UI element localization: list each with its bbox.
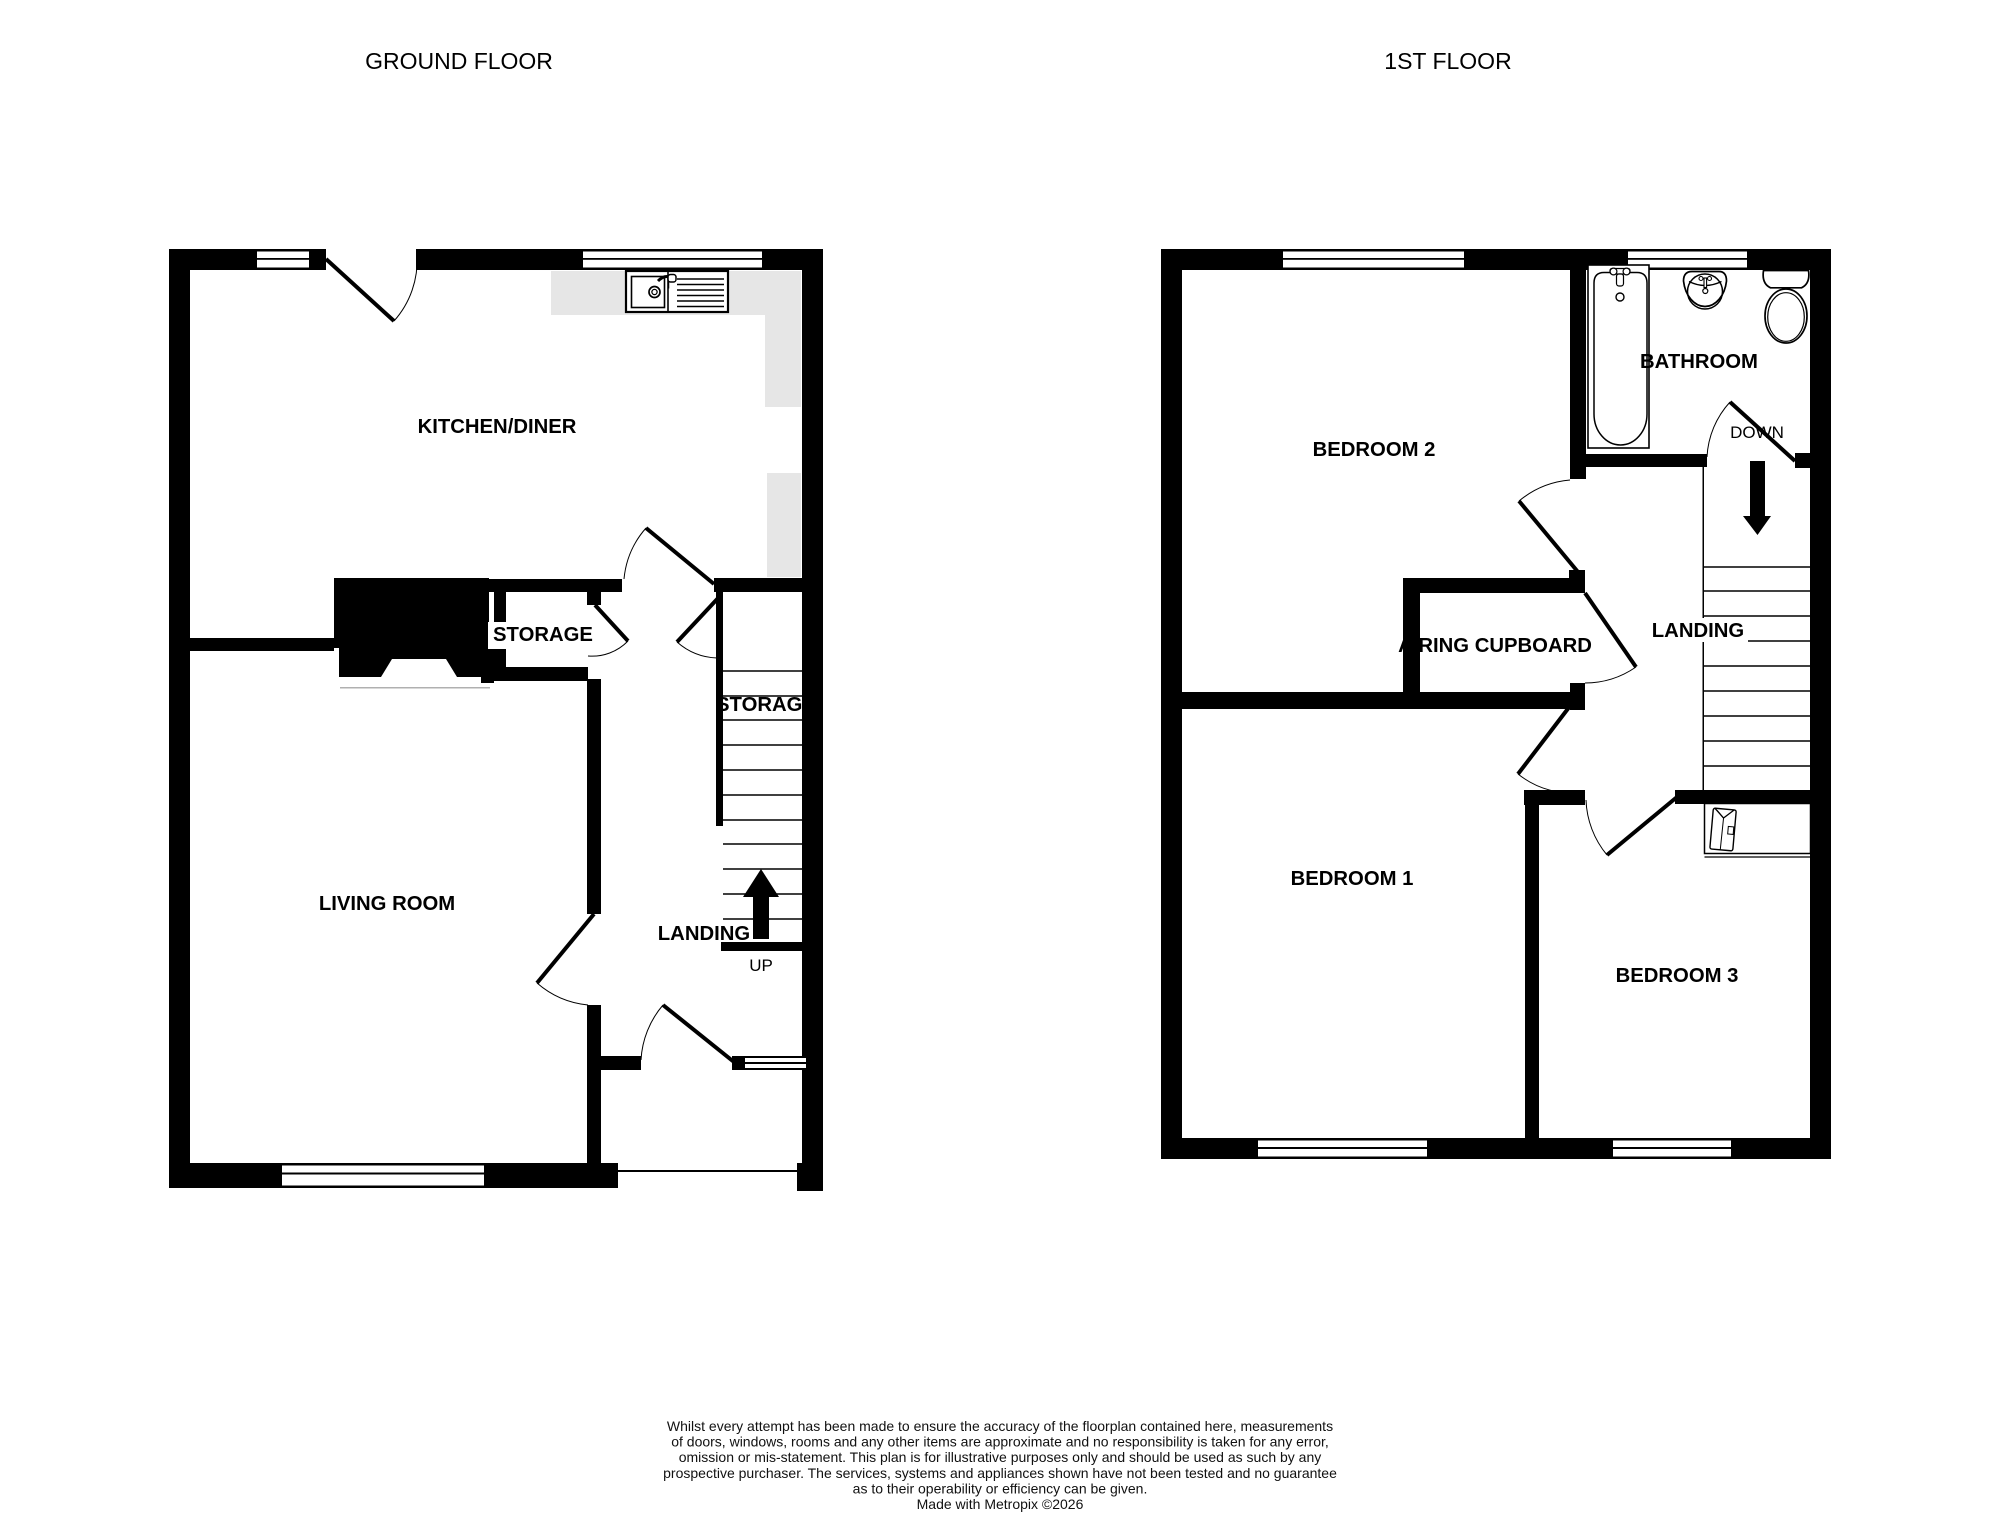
svg-text:BEDROOM 3: BEDROOM 3	[1616, 965, 1739, 987]
svg-text:BATHROOM: BATHROOM	[1640, 351, 1758, 373]
svg-text:STORAGE: STORAGE	[716, 694, 816, 716]
svg-text:DOWN: DOWN	[1730, 423, 1784, 442]
svg-text:KITCHEN/DINER: KITCHEN/DINER	[418, 416, 577, 438]
svg-text:as to their operability or eff: as to their operability or efficiency ca…	[853, 1480, 1148, 1496]
svg-text:Made with Metropix ©2026: Made with Metropix ©2026	[917, 1496, 1084, 1512]
svg-text:LANDING: LANDING	[1652, 620, 1744, 642]
svg-text:Whilst every attempt has been: Whilst every attempt has been made to en…	[667, 1418, 1333, 1434]
svg-text:BEDROOM 1: BEDROOM 1	[1291, 868, 1414, 890]
svg-text:prospective purchaser. The ser: prospective purchaser. The services, sys…	[663, 1465, 1337, 1481]
svg-text:GROUND FLOOR: GROUND FLOOR	[365, 48, 553, 74]
svg-text:UP: UP	[749, 956, 773, 975]
svg-text:BEDROOM 2: BEDROOM 2	[1313, 439, 1436, 461]
svg-text:LANDING: LANDING	[658, 923, 750, 945]
svg-text:AIRING CUPBOARD: AIRING CUPBOARD	[1398, 635, 1592, 657]
svg-text:STORAGE: STORAGE	[493, 624, 593, 646]
svg-text:LIVING ROOM: LIVING ROOM	[319, 893, 455, 915]
svg-text:omission or mis-statement. Thi: omission or mis-statement. This plan is …	[679, 1449, 1322, 1465]
svg-text:of doors, windows, rooms and a: of doors, windows, rooms and any other i…	[671, 1434, 1329, 1450]
svg-text:1ST FLOOR: 1ST FLOOR	[1384, 48, 1511, 74]
